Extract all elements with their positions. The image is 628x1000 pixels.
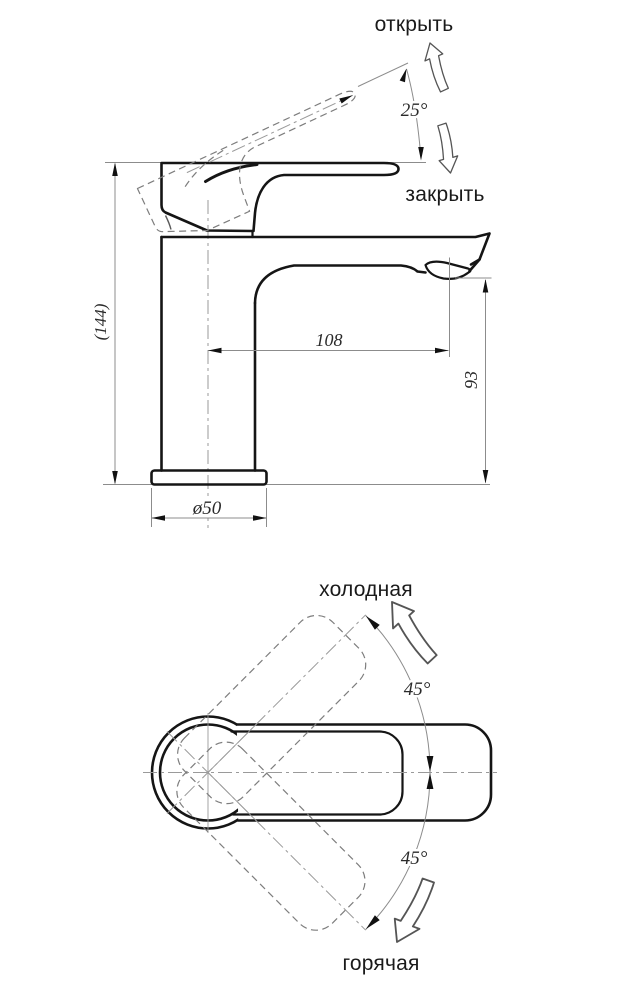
height-dim-text: (144)	[91, 303, 110, 340]
faucet-technical-drawing: (144) 108 93 ø50	[0, 0, 628, 1000]
base-diameter-dim-text: ø50	[192, 498, 222, 519]
close-label: закрыть	[405, 183, 484, 206]
cold-angle-text: 45°	[404, 679, 431, 700]
background	[0, 0, 628, 1000]
hot-angle-text: 45°	[401, 848, 428, 869]
lever-angle-dim-text: 25°	[401, 100, 428, 121]
cold-label: холодная	[319, 578, 413, 601]
spout-reach-dim-text: 108	[316, 330, 343, 350]
open-label: открыть	[375, 13, 454, 36]
spout-height-dim-text: 93	[461, 371, 481, 389]
technical-drawing-page: (144) 108 93 ø50	[0, 0, 628, 1000]
hot-label: горячая	[342, 952, 419, 975]
